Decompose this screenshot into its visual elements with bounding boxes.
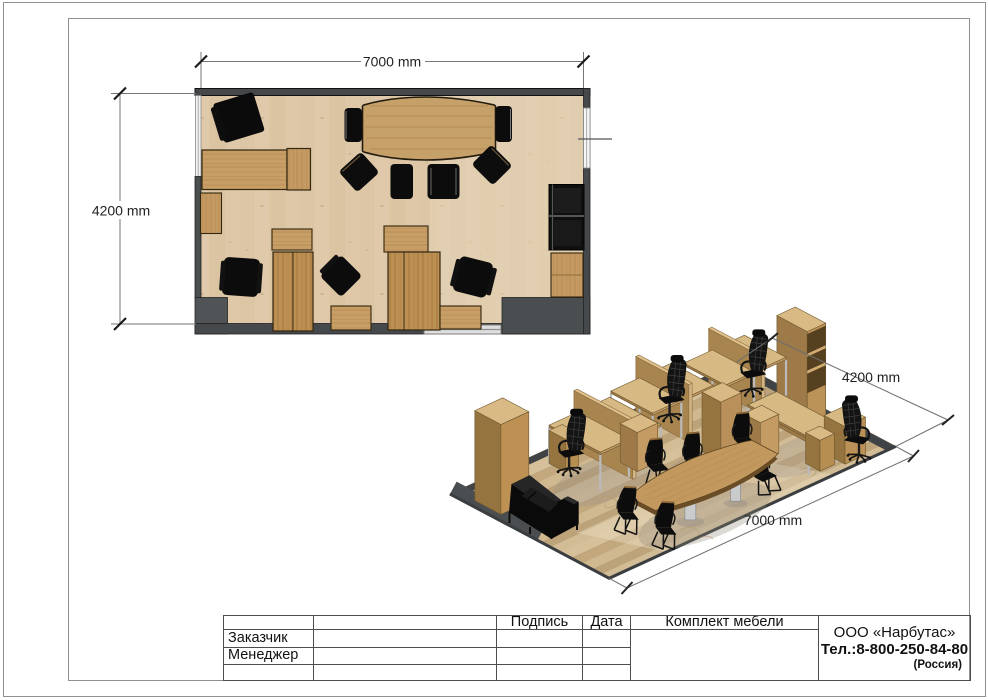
svg-text:4200 mm: 4200 mm bbox=[92, 203, 150, 219]
svg-text:7000 mm: 7000 mm bbox=[363, 54, 421, 70]
svg-text:4200 mm: 4200 mm bbox=[842, 369, 900, 385]
svg-text:7000 mm: 7000 mm bbox=[744, 512, 802, 528]
